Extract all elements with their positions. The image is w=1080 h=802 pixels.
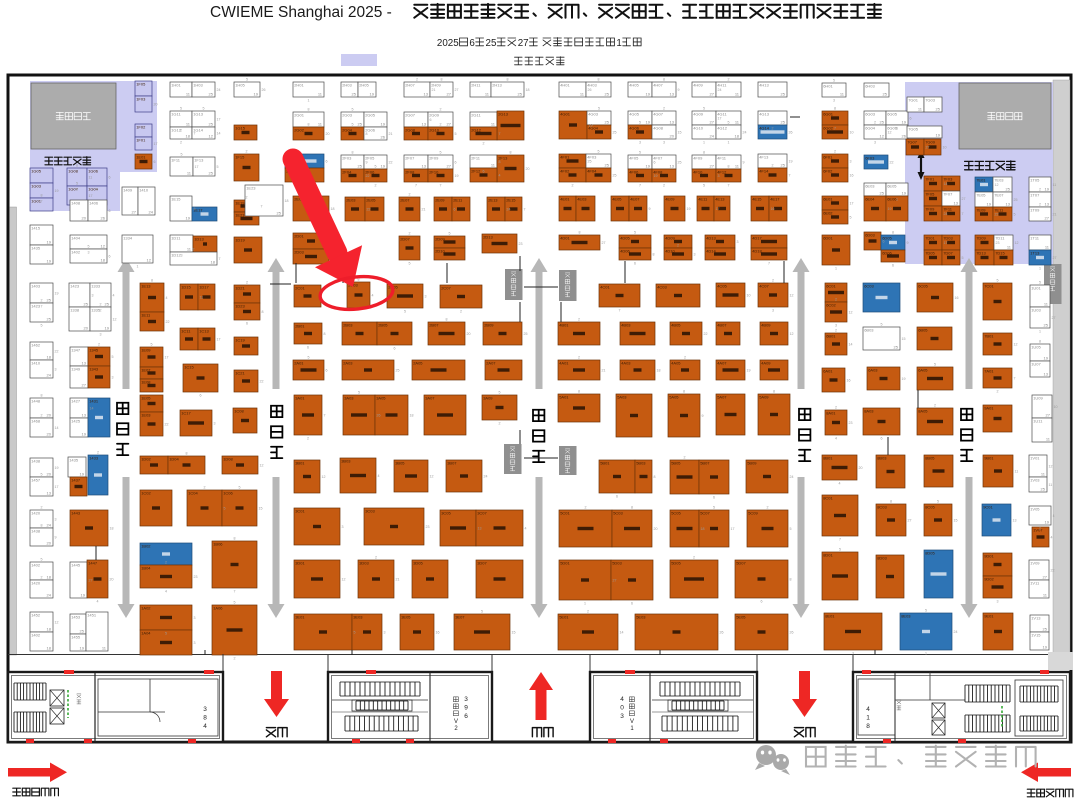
svg-text:8: 8 (866, 723, 870, 730)
svg-text:2: 2 (460, 310, 462, 314)
svg-text:1D17: 1D17 (199, 284, 209, 289)
svg-text:18: 18 (331, 207, 335, 211)
svg-text:1427: 1427 (71, 398, 81, 403)
svg-text:15: 15 (954, 519, 958, 523)
svg-text:10: 10 (1054, 405, 1058, 409)
svg-text:2G07: 2G07 (405, 112, 416, 117)
svg-text:2: 2 (677, 244, 679, 248)
svg-text:5B01: 5B01 (600, 460, 610, 465)
svg-text:7: 7 (261, 205, 263, 209)
svg-text:3C03: 3C03 (365, 508, 375, 513)
svg-text:12: 12 (1014, 343, 1018, 347)
svg-text:3E03: 3E03 (353, 614, 363, 619)
svg-text:6: 6 (616, 495, 618, 499)
svg-text:4E11: 4E11 (698, 196, 708, 201)
svg-text:5D05: 5D05 (671, 560, 681, 565)
svg-text:19: 19 (902, 377, 906, 381)
svg-text:5C05: 5C05 (671, 510, 681, 515)
svg-text:6F01: 6F01 (823, 154, 833, 159)
svg-text:2F10: 2F10 (429, 169, 439, 174)
svg-text:7D15: 7D15 (995, 250, 1005, 255)
svg-text:3A09: 3A09 (483, 395, 493, 400)
svg-text:4H07: 4H07 (653, 82, 663, 87)
svg-text:3D03: 3D03 (359, 560, 369, 565)
svg-text:9C01: 9C01 (983, 504, 993, 509)
svg-text:5A03: 5A03 (617, 394, 627, 399)
svg-text:4D09: 4D09 (665, 235, 675, 240)
svg-text:1D08: 1D08 (223, 456, 233, 461)
svg-text:2B01: 2B01 (295, 323, 305, 328)
svg-text:4F11: 4F11 (717, 155, 727, 160)
svg-text:5D07: 5D07 (736, 560, 746, 565)
svg-text:27: 27 (82, 383, 87, 388)
svg-text:25: 25 (47, 298, 52, 303)
svg-text:27: 27 (1043, 575, 1048, 580)
svg-text:6G03: 6G03 (865, 111, 876, 116)
svg-text:19: 19 (646, 164, 651, 169)
svg-text:12: 12 (209, 134, 214, 139)
svg-text:6G01: 6G01 (823, 111, 834, 116)
svg-text:5A01: 5A01 (559, 394, 569, 399)
svg-text:6: 6 (76, 188, 78, 192)
svg-text:12: 12 (322, 475, 326, 479)
svg-text:1345: 1345 (89, 347, 99, 352)
svg-text:1435: 1435 (69, 457, 79, 462)
svg-text:1E05: 1E05 (141, 395, 151, 400)
svg-text:2G08: 2G08 (405, 127, 416, 132)
svg-text:20: 20 (526, 167, 530, 171)
svg-text:1447: 1447 (88, 560, 98, 565)
svg-text:8: 8 (890, 500, 892, 504)
svg-text:4D01: 4D01 (560, 235, 570, 240)
svg-text:17: 17 (195, 165, 199, 169)
svg-text:24: 24 (217, 88, 221, 92)
svg-text:5: 5 (703, 184, 705, 188)
svg-text:19: 19 (654, 174, 658, 178)
svg-text:1: 1 (1039, 267, 1041, 271)
svg-text:7: 7 (41, 200, 43, 204)
svg-text:25: 25 (1043, 627, 1048, 632)
svg-text:6D01: 6D01 (823, 235, 833, 240)
svg-text:24: 24 (790, 475, 794, 479)
svg-text:5: 5 (308, 356, 310, 360)
svg-text:19: 19 (455, 174, 459, 178)
svg-text:7A01: 7A01 (984, 368, 994, 373)
svg-text:9: 9 (649, 207, 651, 211)
svg-text:7D07: 7D07 (943, 250, 953, 255)
svg-text:24: 24 (47, 593, 52, 598)
svg-text:7C01: 7C01 (984, 283, 994, 288)
svg-text:1E03: 1E03 (141, 412, 151, 417)
svg-text:22: 22 (366, 174, 370, 178)
svg-text:5: 5 (1039, 281, 1041, 285)
svg-text:5: 5 (239, 486, 241, 490)
svg-text:2: 2 (835, 406, 837, 410)
svg-text:2: 2 (416, 78, 418, 82)
svg-text:5: 5 (352, 108, 354, 112)
svg-text:3: 3 (620, 713, 624, 720)
svg-text:5: 5 (499, 391, 501, 395)
svg-text:4D06: 4D06 (620, 248, 630, 253)
svg-text:23: 23 (426, 525, 430, 529)
svg-text:7D01: 7D01 (925, 235, 935, 240)
svg-text:2F09: 2F09 (429, 155, 439, 160)
svg-text:7G09: 7G09 (925, 139, 936, 144)
svg-text:7G01: 7G01 (908, 97, 919, 102)
svg-text:27: 27 (132, 210, 137, 215)
svg-text:13: 13 (670, 92, 675, 97)
svg-text:8: 8 (352, 151, 354, 155)
svg-text:5: 5 (440, 151, 442, 155)
svg-text:22: 22 (389, 161, 393, 165)
svg-text:5: 5 (96, 188, 98, 192)
svg-text:8D05: 8D05 (925, 550, 935, 555)
svg-text:6A05: 6A05 (918, 367, 928, 372)
svg-text:20: 20 (859, 466, 863, 470)
svg-text:8E01: 8E01 (825, 613, 835, 618)
svg-text:1H03: 1H03 (193, 82, 203, 87)
svg-text:6A01: 6A01 (823, 368, 833, 373)
svg-text:19: 19 (902, 191, 907, 196)
svg-text:25: 25 (613, 174, 617, 178)
svg-text:1D19: 1D19 (235, 237, 245, 242)
svg-text:7E09: 7E09 (976, 207, 986, 212)
svg-text:12: 12 (995, 183, 999, 187)
svg-text:17: 17 (89, 194, 93, 198)
svg-text:19: 19 (47, 259, 52, 264)
svg-text:6B03: 6B03 (864, 327, 874, 332)
svg-text:5: 5 (1014, 213, 1016, 217)
svg-text:7F03: 7F03 (943, 176, 953, 181)
svg-text:18: 18 (47, 627, 52, 632)
svg-text:27: 27 (908, 519, 912, 523)
svg-text:18: 18 (101, 258, 106, 263)
svg-text:1: 1 (308, 99, 310, 103)
svg-text:3D05: 3D05 (413, 560, 423, 565)
svg-text:2: 2 (834, 150, 836, 154)
svg-text:7D11: 7D11 (995, 235, 1005, 240)
svg-text:26: 26 (381, 135, 386, 140)
svg-text:18: 18 (110, 527, 114, 531)
svg-text:3: 3 (694, 253, 696, 257)
svg-text:11: 11 (1053, 183, 1057, 187)
svg-text:2: 2 (934, 404, 936, 408)
svg-text:3: 3 (203, 706, 207, 713)
svg-text:17: 17 (154, 142, 158, 146)
svg-text:2: 2 (193, 248, 195, 252)
svg-text:8: 8 (653, 253, 655, 257)
svg-text:6: 6 (713, 496, 715, 500)
svg-text:5: 5 (598, 150, 600, 154)
svg-text:5D01: 5D01 (560, 560, 570, 565)
svg-text:3: 3 (997, 600, 999, 604)
svg-text:3: 3 (874, 141, 876, 145)
svg-text:4: 4 (839, 482, 841, 486)
svg-text:1C02: 1C02 (141, 490, 151, 495)
svg-text:1437: 1437 (71, 477, 81, 482)
svg-text:8: 8 (728, 165, 730, 169)
svg-text:18: 18 (47, 355, 52, 360)
svg-text:7: 7 (789, 174, 791, 178)
svg-text:12: 12 (790, 294, 794, 298)
svg-text:2: 2 (772, 127, 774, 131)
svg-text:5D03: 5D03 (612, 560, 622, 565)
svg-text:5: 5 (449, 232, 451, 236)
svg-text:5: 5 (194, 207, 196, 211)
svg-text:2: 2 (1039, 203, 1041, 207)
svg-text:9: 9 (907, 241, 909, 245)
svg-text:2: 2 (663, 184, 665, 188)
svg-text:19: 19 (80, 472, 85, 477)
svg-text:2F03: 2F03 (342, 155, 352, 160)
svg-text:2E09: 2E09 (435, 197, 445, 202)
svg-text:4B05: 4B05 (671, 322, 681, 327)
svg-text:1C15: 1C15 (184, 364, 194, 369)
svg-text:3: 3 (772, 309, 774, 313)
svg-text:2D10: 2D10 (435, 248, 445, 253)
svg-text:6G05: 6G05 (887, 111, 898, 116)
svg-text:14: 14 (849, 343, 853, 347)
svg-text:22: 22 (55, 350, 59, 354)
svg-text:4G05: 4G05 (629, 111, 640, 116)
svg-text:4: 4 (525, 527, 527, 531)
svg-text:17: 17 (850, 202, 854, 206)
svg-text:9E01: 9E01 (984, 613, 994, 618)
svg-text:2H03: 2H03 (342, 82, 352, 87)
svg-text:8: 8 (654, 475, 656, 479)
svg-text:22: 22 (1051, 569, 1055, 573)
svg-text:1E07: 1E07 (141, 367, 151, 372)
svg-text:22: 22 (260, 380, 264, 384)
svg-text:23: 23 (194, 575, 198, 579)
svg-text:2: 2 (41, 299, 43, 303)
svg-text:6: 6 (109, 176, 111, 180)
svg-text:7F05: 7F05 (925, 191, 935, 196)
svg-text:4: 4 (113, 294, 115, 298)
svg-text:22: 22 (704, 332, 708, 336)
svg-text:25: 25 (1006, 187, 1011, 192)
svg-text:1D02: 1D02 (141, 456, 151, 461)
svg-text:2G03: 2G03 (342, 112, 353, 117)
svg-text:23: 23 (849, 421, 853, 425)
svg-text:7: 7 (839, 538, 841, 542)
svg-text:25: 25 (277, 211, 282, 216)
svg-text:2: 2 (307, 437, 309, 441)
svg-text:21: 21 (1053, 213, 1057, 217)
svg-text:2: 2 (246, 150, 248, 154)
svg-text:12: 12 (880, 134, 885, 139)
svg-text:1: 1 (728, 141, 730, 145)
svg-text:25: 25 (894, 345, 899, 350)
svg-text:1B02: 1B02 (141, 543, 151, 548)
svg-text:19: 19 (1044, 356, 1049, 361)
svg-text:3: 3 (100, 333, 102, 337)
svg-text:18: 18 (186, 134, 191, 139)
svg-text:3D07: 3D07 (477, 560, 487, 565)
svg-text:3B01: 3B01 (295, 460, 305, 465)
svg-text:21: 21 (432, 88, 436, 92)
svg-text:1F02: 1F02 (136, 124, 146, 129)
svg-text:4E05: 4E05 (612, 196, 622, 201)
svg-text:4B01: 4B01 (559, 322, 569, 327)
svg-text:1402: 1402 (31, 632, 41, 637)
svg-text:3: 3 (214, 422, 216, 426)
svg-text:25: 25 (47, 317, 52, 322)
svg-text:2D03: 2D03 (294, 249, 304, 254)
svg-text:17: 17 (716, 207, 720, 211)
svg-text:12: 12 (888, 131, 892, 135)
svg-text:25: 25 (880, 191, 885, 196)
svg-text:8C03: 8C03 (877, 504, 887, 509)
svg-text:4F13: 4F13 (759, 154, 769, 159)
svg-text:22: 22 (165, 423, 169, 427)
svg-text:27: 27 (447, 92, 452, 97)
svg-text:1A02: 1A02 (141, 605, 151, 610)
svg-text:6: 6 (326, 369, 328, 373)
svg-text:21: 21 (396, 578, 400, 582)
svg-text:4G03: 4G03 (588, 111, 599, 116)
svg-text:1C21: 1C21 (235, 370, 245, 375)
svg-text:2: 2 (499, 422, 501, 426)
svg-text:2H07: 2H07 (405, 82, 415, 87)
svg-text:1451: 1451 (87, 612, 97, 617)
svg-text:6: 6 (761, 600, 763, 604)
svg-text:1338: 1338 (70, 307, 80, 312)
svg-text:14: 14 (90, 407, 94, 411)
svg-text:1E19: 1E19 (235, 200, 245, 205)
svg-text:1409: 1409 (123, 187, 133, 192)
svg-text:1E15: 1E15 (171, 196, 181, 201)
svg-text:2: 2 (234, 657, 236, 661)
svg-text:2G10: 2G10 (429, 127, 440, 132)
svg-text:25: 25 (358, 122, 363, 127)
svg-text:18: 18 (657, 369, 661, 373)
svg-text:3C05: 3C05 (441, 510, 451, 515)
svg-text:8B01: 8B01 (823, 455, 833, 460)
svg-text:8: 8 (76, 164, 78, 168)
svg-text:2E13: 2E13 (488, 197, 498, 202)
svg-text:2: 2 (572, 184, 574, 188)
svg-text:2G04: 2G04 (342, 127, 353, 132)
svg-text:5: 5 (934, 363, 936, 367)
svg-text:1343: 1343 (89, 366, 99, 371)
svg-text:2: 2 (835, 329, 837, 333)
svg-text:4H01: 4H01 (560, 82, 570, 87)
svg-text:6B05: 6B05 (918, 327, 928, 332)
svg-text:15: 15 (259, 507, 263, 511)
svg-text:1D23: 1D23 (235, 303, 245, 308)
svg-text:7F01: 7F01 (925, 176, 935, 181)
svg-text:2: 2 (440, 108, 442, 112)
svg-text:4H11: 4H11 (717, 82, 727, 87)
svg-text:5: 5 (839, 548, 841, 552)
svg-text:6E03: 6E03 (865, 183, 875, 188)
svg-text:4F01: 4F01 (560, 154, 570, 159)
svg-text:2: 2 (98, 343, 100, 347)
svg-text:25: 25 (209, 122, 214, 127)
svg-text:4G06: 4G06 (629, 125, 640, 130)
svg-text:24: 24 (484, 475, 488, 479)
svg-text:27: 27 (710, 92, 715, 97)
svg-text:20: 20 (326, 132, 330, 136)
svg-text:6C02: 6C02 (826, 302, 836, 307)
svg-text:1: 1 (896, 198, 898, 202)
svg-text:8B05: 8B05 (925, 455, 935, 460)
svg-text:2: 2 (767, 506, 769, 510)
svg-text:7E07: 7E07 (994, 192, 1004, 197)
svg-text:5A05: 5A05 (669, 394, 679, 399)
svg-text:2E05: 2E05 (366, 197, 376, 202)
svg-text:8: 8 (1039, 340, 1041, 344)
svg-text:27: 27 (962, 197, 966, 201)
svg-text:2: 2 (41, 414, 43, 418)
svg-text:1F11: 1F11 (171, 157, 181, 162)
svg-text:5B07: 5B07 (700, 460, 710, 465)
svg-text:2: 2 (587, 610, 589, 614)
svg-text:4F09: 4F09 (693, 155, 703, 160)
svg-text:4C07: 4C07 (759, 283, 769, 288)
svg-text:2G13: 2G13 (498, 111, 509, 116)
svg-text:4: 4 (1053, 514, 1055, 518)
svg-text:1: 1 (616, 38, 621, 49)
svg-text:20: 20 (47, 472, 52, 477)
svg-text:9: 9 (702, 414, 704, 418)
svg-text:7: 7 (524, 208, 526, 212)
svg-text:8: 8 (507, 78, 509, 82)
svg-text:2D09: 2D09 (435, 236, 445, 241)
svg-text:8: 8 (441, 78, 443, 82)
svg-text:12: 12 (790, 332, 794, 336)
svg-text:7F07: 7F07 (943, 191, 953, 196)
svg-text:8A03: 8A03 (864, 408, 874, 413)
svg-text:8: 8 (324, 332, 326, 336)
svg-text:5: 5 (224, 507, 226, 511)
svg-text:6E04: 6E04 (865, 196, 875, 201)
svg-text:24: 24 (743, 131, 747, 135)
svg-text:7F11: 7F11 (943, 206, 953, 211)
svg-text:14: 14 (944, 182, 948, 186)
svg-text:4G13: 4G13 (759, 111, 770, 116)
svg-text:19: 19 (55, 292, 59, 296)
svg-text:5: 5 (180, 107, 182, 111)
svg-text:4C03: 4C03 (657, 284, 667, 289)
svg-text:8: 8 (499, 160, 501, 164)
svg-text:1E13: 1E13 (141, 283, 151, 288)
svg-text:2: 2 (409, 232, 411, 236)
svg-text:11: 11 (200, 296, 204, 300)
svg-text:6G04: 6G04 (865, 125, 876, 130)
svg-text:7D13: 7D13 (976, 250, 986, 255)
svg-text:3: 3 (850, 160, 852, 164)
svg-text:2C07: 2C07 (441, 285, 451, 290)
svg-text:1410: 1410 (31, 360, 41, 365)
svg-text:27: 27 (455, 88, 459, 92)
svg-text:4C05: 4C05 (717, 283, 727, 288)
svg-text:2A03: 2A03 (343, 360, 353, 365)
svg-text:2H11: 2H11 (471, 82, 481, 87)
svg-text:25: 25 (1041, 487, 1046, 492)
svg-text:10: 10 (850, 131, 854, 135)
svg-text:25: 25 (781, 92, 786, 97)
svg-text:4H09: 4H09 (693, 82, 703, 87)
svg-text:6: 6 (109, 209, 111, 213)
svg-text:1D15: 1D15 (181, 284, 191, 289)
svg-text:1E23: 1E23 (246, 185, 256, 190)
svg-text:7E03: 7E03 (994, 177, 1004, 182)
svg-text:4: 4 (203, 723, 207, 730)
svg-text:1E08: 1E08 (141, 379, 151, 384)
svg-text:4E09: 4E09 (665, 196, 675, 201)
